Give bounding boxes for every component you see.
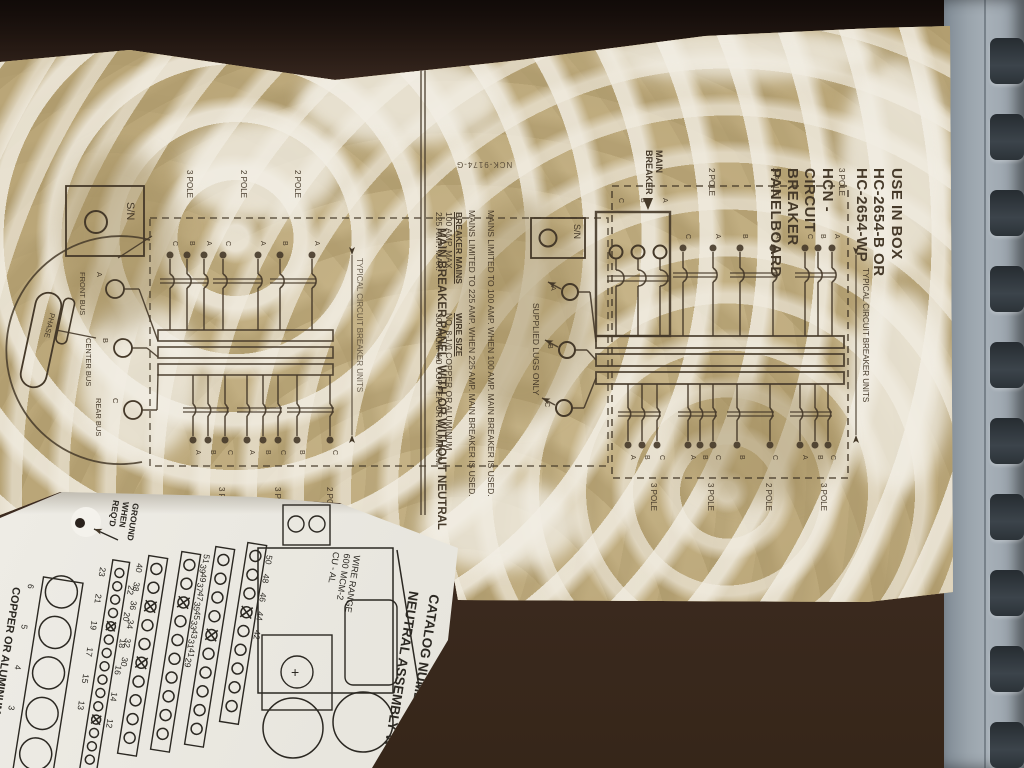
terminal-dot <box>825 442 832 449</box>
phase-letter: B <box>546 344 553 349</box>
breaker-contact <box>187 274 191 288</box>
bus-name: FRONT BUS <box>78 272 87 315</box>
neutral-hole <box>190 723 203 736</box>
terminal-dot <box>260 437 267 444</box>
hole-number: 39 <box>197 563 208 574</box>
breaker-contact <box>770 408 773 420</box>
panel-photo: CBACABACBAABCABCBCABCABCCBACABAABCABCBC … <box>0 0 1024 768</box>
hinge-slot <box>990 722 1024 768</box>
neutral-hole <box>168 652 181 665</box>
phase-letter: A <box>313 241 320 246</box>
breaker-contact <box>660 270 668 286</box>
phase-letter: A <box>714 234 721 239</box>
serial-number-label-right: S/N <box>572 224 582 239</box>
breaker-contact <box>330 404 333 416</box>
breaker-contact <box>713 408 716 420</box>
breaker-contact <box>278 404 281 416</box>
breaker-contact <box>828 408 831 420</box>
sn-hole-right <box>540 230 557 247</box>
neutral-hole <box>129 694 142 707</box>
hole-x-mark <box>106 621 116 631</box>
hole-number: 23 <box>97 567 108 578</box>
phase-letter: C <box>771 455 778 460</box>
terminal-dot <box>737 245 744 252</box>
phase-letter: A <box>259 241 266 246</box>
bus-bar <box>596 354 844 366</box>
pole-label: 3 POLE <box>649 483 658 511</box>
neutral-hole <box>196 685 209 698</box>
breaker-contact <box>616 270 624 286</box>
terminal-dot <box>767 442 774 449</box>
neutral-hole <box>156 728 169 741</box>
arrow-head <box>349 435 355 443</box>
breaker-contact <box>258 274 262 288</box>
neutral-hole <box>159 709 172 722</box>
neutral-hole <box>99 661 109 671</box>
hole-number: 14 <box>108 691 119 702</box>
neutral-hole <box>132 675 145 688</box>
terminal-dot <box>625 442 632 449</box>
hole-number: 6 <box>26 583 37 590</box>
lug-barrel <box>263 698 323 758</box>
phase-letter: B <box>741 234 748 239</box>
hole-number: 36 <box>128 600 139 611</box>
hinge-rail-seam <box>984 0 986 768</box>
neutral-hole <box>110 594 120 604</box>
terminal-dot <box>685 442 692 449</box>
breaker-contact <box>223 274 227 288</box>
hinge-slot <box>990 342 1024 388</box>
bus-bar <box>596 372 844 384</box>
neutral-hole <box>150 563 163 576</box>
hinge-slot <box>990 114 1024 160</box>
hole-number: 19 <box>88 620 99 631</box>
phase-letter: A <box>194 450 201 455</box>
terminal-dot <box>710 442 717 449</box>
breaker-contact <box>713 268 717 282</box>
terminal-dot <box>327 437 334 444</box>
terminal-dot <box>275 437 282 444</box>
hole-number: 21 <box>92 593 103 604</box>
lug-plus-mark: + <box>291 664 299 680</box>
ground-hole <box>75 518 85 528</box>
pole-label: 2 POLE <box>764 483 773 511</box>
main-breaker-arrow <box>643 198 653 210</box>
hole-number: 20 <box>121 611 132 622</box>
breaker-contact <box>263 404 266 416</box>
terminal-dot <box>205 437 212 444</box>
hole-number: 46 <box>257 592 268 603</box>
hole-number: 17 <box>84 647 95 658</box>
breaker-contact <box>193 404 196 416</box>
terminal-dot <box>220 252 227 259</box>
neutral-hole <box>89 728 99 738</box>
arrow-head <box>349 247 355 255</box>
supplied-lugs-note: SUPPLIED LUGS ONLY <box>530 303 540 395</box>
bus-label-front: A FRONT BUS <box>69 272 112 315</box>
breaker-contact <box>312 274 316 288</box>
hole-number: 40 <box>134 563 145 574</box>
hole-number: 22 <box>125 585 136 596</box>
hinge-slot <box>990 570 1024 616</box>
neutral-hole <box>246 568 259 581</box>
neutral-hole-strip: 514947454341 <box>172 545 234 747</box>
feeder-lug <box>562 284 578 300</box>
ground-when-reqd-note: GROUND WHEN REQ'D <box>105 499 140 541</box>
phase-letter: B <box>188 241 195 246</box>
serial-number-label-left: S/N <box>123 202 136 220</box>
neutral-hole <box>138 638 151 651</box>
phase-letter: A <box>689 455 696 460</box>
phase-letter: C <box>829 455 836 460</box>
hinge-slot <box>990 38 1024 84</box>
breaker-contact <box>170 274 174 288</box>
phase-letter: C <box>171 241 178 246</box>
neutral-hole <box>126 713 139 726</box>
neutral-hole <box>123 732 136 745</box>
neutral-hole <box>114 568 124 578</box>
neutral-hole <box>162 690 175 703</box>
lug-hole <box>309 516 325 532</box>
pole-label: 3 POLE <box>185 170 194 198</box>
neutral-hole <box>234 643 247 656</box>
hole-number: 13 <box>75 700 86 711</box>
neutral-hole <box>112 581 122 591</box>
hole-number: 15 <box>80 673 91 684</box>
bus-letter: C <box>111 398 120 436</box>
wire-line <box>118 236 152 258</box>
neutral-hole <box>228 681 241 694</box>
neutral-hole <box>87 741 97 751</box>
bus-name: CENTER BUS <box>84 338 93 386</box>
part-number: NCK-9174-G <box>456 160 512 169</box>
hole-number: 31 <box>185 638 196 649</box>
breaker-contact <box>297 404 300 416</box>
lug-box-top <box>283 505 330 545</box>
breaker-contact <box>800 408 803 420</box>
terminal-dot <box>734 442 741 449</box>
pole-label: 3 POLE <box>706 483 715 511</box>
wire-line <box>56 330 96 338</box>
phase-letter: B <box>281 241 288 246</box>
pole-label: 2 POLE <box>293 170 302 198</box>
neutral-hole <box>214 572 227 585</box>
phase-letter: A <box>801 455 808 460</box>
mains-note-100: MAINS LIMITED TO 100 AMP. WHEN 100 AMP. … <box>485 210 495 497</box>
neutral-hole <box>95 688 105 698</box>
neutral-hole <box>243 587 256 600</box>
neutral-hole <box>37 614 74 651</box>
breaker-contact <box>683 268 687 282</box>
use-in-box-line1: USE IN BOX HC-2654-B OR HC-2654-WP <box>853 168 905 278</box>
main-breaker-terminal <box>632 246 645 259</box>
phase-letter: A <box>248 450 255 455</box>
typical-units-note-left: TYPICAL CIRCUIT BREAKER UNITS <box>355 258 364 392</box>
strip-outline <box>10 577 83 768</box>
neutral-hole <box>24 695 61 732</box>
neutral-hole <box>231 662 244 675</box>
bus-label-rear: C REAR BUS <box>85 398 128 436</box>
hinge-slot <box>990 418 1024 464</box>
breaker-contact <box>225 404 228 416</box>
pole-label: 2 POLE <box>771 168 780 196</box>
hinge-slot <box>990 190 1024 236</box>
phase-letter: C <box>279 450 286 455</box>
hole-number: 16 <box>112 665 123 676</box>
terminal-dot <box>680 245 687 252</box>
feeder-lug <box>556 400 572 416</box>
phase-letter: B <box>701 455 708 460</box>
pole-label: 3 POLE <box>837 168 846 196</box>
phase-letter: C <box>224 241 231 246</box>
neutral-hole <box>183 559 196 572</box>
phase-letter: A <box>205 241 212 246</box>
pole-label: 3 POLE <box>819 483 828 511</box>
breaker-contact <box>688 408 691 420</box>
sn-hole-left <box>85 211 107 233</box>
neutral-hole <box>93 701 103 711</box>
arrow-head <box>853 435 859 443</box>
hole-number: 18 <box>117 638 128 649</box>
phase-letter: C <box>684 234 691 239</box>
neutral-hole <box>97 674 107 684</box>
phase-letter: A <box>661 198 668 203</box>
bus-bar-left <box>158 330 333 341</box>
main-breaker-callout: MAIN BREAKER <box>643 150 664 192</box>
phase-letter: B <box>816 455 823 460</box>
wire-line <box>587 350 596 360</box>
bus-name: REAR BUS <box>94 398 103 436</box>
bus-bar <box>596 336 844 348</box>
hole-number: 5 <box>19 624 30 631</box>
breaker-contact <box>815 408 818 420</box>
hole-number: 48 <box>260 573 271 584</box>
neutral-hole <box>211 591 224 604</box>
hole-number: 44 <box>254 611 265 622</box>
lug-body-outline <box>258 548 393 693</box>
wire-line <box>139 289 158 341</box>
sn-box-left <box>66 186 144 256</box>
feeder-lug <box>559 342 575 358</box>
hole-number: 29 <box>182 657 193 668</box>
phase-letter: C <box>543 402 550 407</box>
hinge-slot <box>990 494 1024 540</box>
terminal-dot <box>167 252 174 259</box>
main-breaker-terminal <box>654 246 667 259</box>
neutral-hole <box>174 615 187 628</box>
terminal-dot <box>639 442 646 449</box>
phase-letter: A <box>549 286 556 291</box>
neutral-hole <box>17 736 54 768</box>
terminal-dot <box>710 245 717 252</box>
neutral-hole <box>225 700 238 713</box>
wire-line <box>157 374 158 410</box>
phase-letter: C <box>658 455 665 460</box>
phase-letter: C <box>714 455 721 460</box>
neutral-hole <box>108 608 118 618</box>
hole-number: 42 <box>251 629 262 640</box>
hole-number: 12 <box>104 718 115 729</box>
neutral-hole <box>104 634 114 644</box>
wire-line <box>147 348 158 357</box>
phase-letter: B <box>738 455 745 460</box>
panel-title: MAIN BREAKER PANEL, WITH OR WITHOUT NEUT… <box>434 228 447 530</box>
terminal-dot <box>812 442 819 449</box>
neutral-hole <box>85 754 95 764</box>
terminal-dot <box>201 252 208 259</box>
breaker-contact <box>642 408 645 420</box>
phase-letter: B <box>298 450 305 455</box>
terminal-dot <box>654 442 661 449</box>
terminal-dot <box>244 437 251 444</box>
hole-number: 3 <box>6 705 17 712</box>
hinge-slot <box>990 646 1024 692</box>
phase-letter: B <box>209 450 216 455</box>
phase-letter: C <box>226 450 233 455</box>
lug-hole <box>288 516 304 532</box>
terminal-dot <box>697 442 704 449</box>
hole-number: 35 <box>191 601 202 612</box>
bus-bar-left <box>158 364 333 375</box>
terminal-dot <box>309 252 316 259</box>
terminal-dot <box>797 442 804 449</box>
bus-bar-left <box>158 347 333 358</box>
table-col1-header: BREAKER MAINS <box>453 212 463 307</box>
terminal-dot <box>277 252 284 259</box>
pole-label: 2 POLE <box>239 170 248 198</box>
breaker-contact <box>280 274 284 288</box>
neutral-hole <box>193 704 206 717</box>
hole-number: 4 <box>13 664 24 671</box>
hinge-slot <box>990 266 1024 312</box>
hole-number: 37 <box>194 582 205 593</box>
hole-number: 33 <box>188 620 199 631</box>
neutral-hole <box>202 647 215 660</box>
breaker-contact <box>700 408 703 420</box>
neutral-hole <box>249 550 262 563</box>
neutral-hole <box>199 666 212 679</box>
neutral-hole <box>237 625 250 638</box>
typical-units-note-right: TYPICAL CIRCUIT BREAKER UNITS <box>861 268 870 402</box>
terminal-dot <box>294 437 301 444</box>
breaker-contact <box>657 408 660 420</box>
neutral-hole <box>208 610 221 623</box>
neutral-hole <box>180 577 193 590</box>
strip-outline <box>118 556 168 757</box>
terminal-dot <box>190 437 197 444</box>
neutral-hole <box>102 648 112 658</box>
neutral-hole <box>217 554 230 567</box>
hole-number: 50 <box>263 554 274 565</box>
main-breaker-box <box>596 212 670 336</box>
terminal-dot <box>222 437 229 444</box>
bus-label-center: B CENTER BUS <box>75 338 118 386</box>
phase-letter: C <box>617 198 624 203</box>
neutral-hole <box>141 619 154 632</box>
neutral-hole <box>171 634 184 647</box>
phase-letter: B <box>264 450 271 455</box>
breaker-contact <box>628 408 631 420</box>
terminal-dot <box>184 252 191 259</box>
breaker-contact <box>204 274 208 288</box>
neutral-hole <box>30 655 67 692</box>
wire-line <box>584 378 596 408</box>
neutral-hole-strip: 5048464442 <box>220 543 276 726</box>
breaker-contact <box>208 404 211 416</box>
phase-letter: B <box>643 455 650 460</box>
terminal-dot <box>255 252 262 259</box>
phase-letter: A <box>629 455 636 460</box>
phase-letter: C <box>331 450 338 455</box>
bus-letter: A <box>95 272 104 315</box>
breaker-contact <box>638 270 646 286</box>
hole-x-mark <box>91 714 101 724</box>
breaker-contact <box>740 268 744 282</box>
breaker-contact <box>247 404 250 416</box>
breaker-wire-table: BREAKER MAINS WIRE SIZE 100 AMP. MAX. NO… <box>415 212 481 498</box>
bus-letter: B <box>101 338 110 386</box>
neutral-hole <box>165 671 178 684</box>
table-col2-header: WIRE SIZE <box>453 313 463 498</box>
pole-label: 2 POLE <box>707 168 716 196</box>
breaker-contact <box>737 408 740 420</box>
neutral-hole <box>147 581 160 594</box>
